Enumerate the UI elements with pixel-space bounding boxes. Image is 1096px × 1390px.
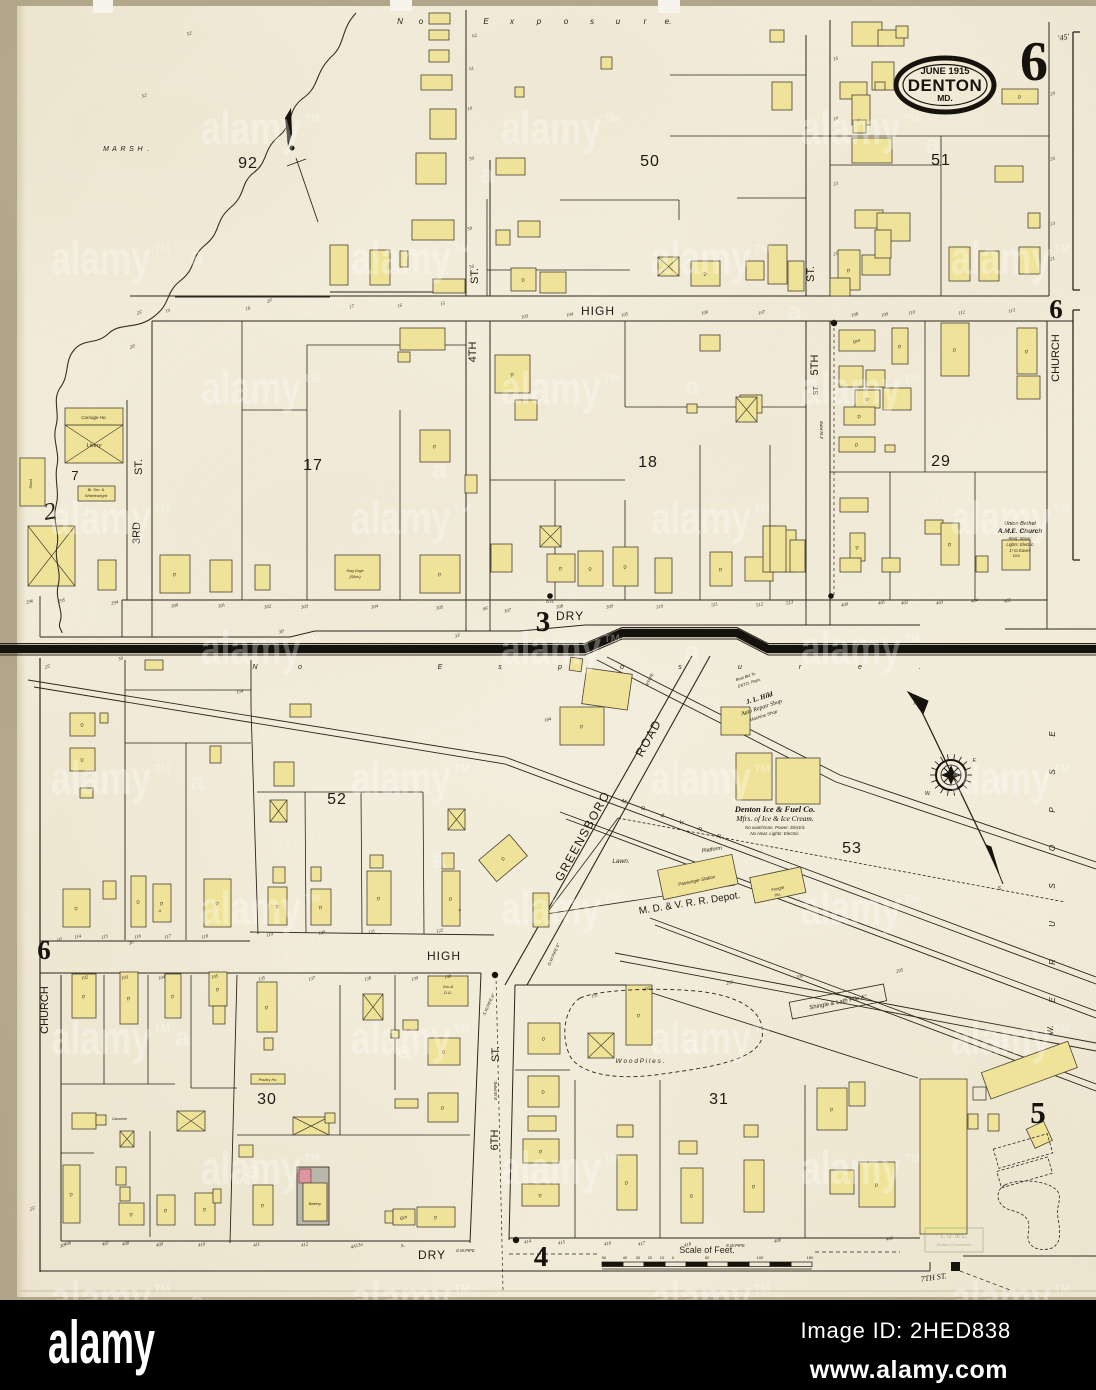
svg-text:TM: TM <box>904 893 920 905</box>
svg-text:50: 50 <box>602 1255 607 1260</box>
svg-text:TM: TM <box>1054 243 1070 255</box>
svg-text:a: a <box>432 844 447 874</box>
svg-text:52: 52 <box>327 791 347 808</box>
svg-text:alamy: alamy <box>801 362 901 414</box>
svg-text:HIGH: HIGH <box>427 949 461 963</box>
svg-text:E: E <box>483 17 489 26</box>
svg-text:TM: TM <box>754 1023 770 1035</box>
svg-text:5: 5 <box>1030 1095 1046 1130</box>
svg-text:20: 20 <box>648 1255 653 1260</box>
svg-text:alamy: alamy <box>51 752 151 804</box>
svg-text:alamy: alamy <box>501 1142 601 1194</box>
svg-text:30: 30 <box>636 1255 641 1260</box>
svg-text:alamy: alamy <box>501 102 601 154</box>
svg-text:Image ID: 2HED838: Image ID: 2HED838 <box>801 1318 1011 1343</box>
svg-text:E: E <box>1048 997 1057 1003</box>
svg-text:ST.: ST. <box>469 268 481 284</box>
svg-text:O.H.: O.H. <box>546 599 554 604</box>
svg-text:6: 6 <box>1049 294 1063 324</box>
svg-text:www.alamy.com: www.alamy.com <box>809 1356 1008 1384</box>
svg-text:ST.: ST. <box>490 1046 502 1062</box>
svg-text:DRY: DRY <box>556 609 584 623</box>
svg-text:6: 6 <box>37 935 51 965</box>
svg-text:.: . <box>148 146 150 153</box>
svg-text:40: 40 <box>623 1255 628 1260</box>
svg-text:a: a <box>685 371 700 401</box>
svg-text:TM: TM <box>154 1023 170 1035</box>
svg-text:U: U <box>1048 921 1057 927</box>
svg-text:P: P <box>1048 807 1057 813</box>
svg-text:Poultry Ho.: Poultry Ho. <box>259 1078 278 1082</box>
svg-text:ST.: ST. <box>133 459 145 475</box>
svg-text:TM: TM <box>754 243 770 255</box>
svg-text:O: O <box>1048 845 1057 851</box>
svg-text:N: N <box>397 17 403 26</box>
svg-text:o: o <box>419 17 424 26</box>
svg-text:E: E <box>438 664 443 671</box>
svg-text:alamy: alamy <box>651 492 751 544</box>
svg-text:150: 150 <box>807 1255 814 1260</box>
svg-text:alamy: alamy <box>201 622 301 674</box>
svg-text:alamy: alamy <box>801 882 901 934</box>
svg-text:100: 100 <box>757 1255 764 1260</box>
svg-text:alamy: alamy <box>651 1012 751 1064</box>
svg-text:S: S <box>1048 883 1057 889</box>
svg-text:Lawn.: Lawn. <box>612 858 630 865</box>
svg-text:p: p <box>536 17 542 26</box>
svg-text:TM: TM <box>604 1153 620 1165</box>
svg-text:alamy: alamy <box>951 232 1051 284</box>
svg-text:alamy: alamy <box>651 752 751 804</box>
svg-text:53: 53 <box>842 840 862 857</box>
svg-text:alamy: alamy <box>351 752 451 804</box>
svg-text:S.: S. <box>998 886 1003 892</box>
svg-text:TM: TM <box>154 1283 170 1295</box>
svg-text:a: a <box>684 636 699 666</box>
svg-text:10: 10 <box>660 1255 665 1260</box>
svg-text:alamy: alamy <box>801 102 901 154</box>
svg-text:a: a <box>993 765 1008 795</box>
svg-text:Rag Grge: Rag Grge <box>346 568 364 573</box>
svg-text:alamy: alamy <box>351 232 451 284</box>
svg-text:alamy: alamy <box>201 362 301 414</box>
svg-text:6: 6 <box>1020 31 1048 93</box>
svg-text:a: a <box>246 1155 261 1185</box>
svg-text:e.: e. <box>665 17 672 26</box>
svg-text:TM: TM <box>604 633 620 645</box>
svg-text:4: 4 <box>534 1241 549 1273</box>
svg-text:Mfrs. of Ice & Ice Cream.: Mfrs. of Ice & Ice Cream. <box>735 814 814 823</box>
svg-text:TM: TM <box>154 243 170 255</box>
svg-text:M: M <box>103 146 109 153</box>
svg-text:MD.: MD. <box>937 93 953 103</box>
svg-text:DRY: DRY <box>418 1248 446 1262</box>
svg-text:W.: W. <box>925 791 931 797</box>
svg-text:a: a <box>787 296 802 326</box>
svg-text:TM: TM <box>304 113 320 125</box>
svg-text:TM: TM <box>154 763 170 775</box>
svg-text:4"W.PIPE: 4"W.PIPE <box>819 421 824 440</box>
svg-text:o: o <box>620 664 624 671</box>
svg-text:TM: TM <box>754 1283 770 1295</box>
svg-text:TM: TM <box>604 373 620 385</box>
svg-text:TM: TM <box>754 763 770 775</box>
svg-text:92: 92 <box>238 155 258 172</box>
svg-text:R: R <box>120 146 125 153</box>
svg-text:50: 50 <box>705 1255 710 1260</box>
svg-text:alamy: alamy <box>51 492 151 544</box>
svg-text:CHURCH: CHURCH <box>1050 334 1062 382</box>
svg-text:TM: TM <box>604 113 620 125</box>
svg-text:alamy: alamy <box>651 232 751 284</box>
svg-text:TM: TM <box>454 763 470 775</box>
svg-text:TM: TM <box>304 893 320 905</box>
svg-text:a: a <box>925 129 940 159</box>
svg-text:1¹ to Eaves: 1¹ to Eaves <box>1009 548 1031 553</box>
svg-text:D.G.: D.G. <box>444 990 452 995</box>
svg-text:a: a <box>397 1035 412 1065</box>
svg-text:alamy: alamy <box>501 622 601 674</box>
svg-text:a: a <box>684 1029 699 1059</box>
svg-text:a: a <box>995 1024 1010 1054</box>
svg-text:HIGH: HIGH <box>581 304 615 318</box>
svg-text:TM: TM <box>304 1153 320 1165</box>
svg-text:1D5: 1D5 <box>1012 553 1020 558</box>
svg-text:17: 17 <box>303 457 323 474</box>
svg-text:TM: TM <box>1054 763 1070 775</box>
svg-text:TM: TM <box>304 373 320 385</box>
svg-text:alamy: alamy <box>801 622 901 674</box>
svg-text:S: S <box>129 146 134 153</box>
svg-text:30: 30 <box>257 1091 277 1108</box>
svg-text:Bakery: Bakery <box>309 1201 322 1206</box>
svg-text:Division of Commerce: Division of Commerce <box>937 1243 971 1247</box>
svg-text:TM: TM <box>904 373 920 385</box>
svg-text:TM: TM <box>1054 503 1070 515</box>
svg-text:31: 31 <box>709 1091 729 1108</box>
svg-text:Gasoline: Gasoline <box>112 1117 127 1121</box>
svg-text:TM: TM <box>904 1153 920 1165</box>
svg-text:R: R <box>1048 959 1057 965</box>
svg-text:Shed: Shed <box>28 479 33 489</box>
svg-text:a: a <box>175 1022 190 1052</box>
svg-text:alamy: alamy <box>51 1012 151 1064</box>
svg-text:alamy: alamy <box>501 882 601 934</box>
svg-text:CHURCH: CHURCH <box>39 986 51 1034</box>
svg-text:4TH: 4TH <box>467 342 479 363</box>
svg-text:E.W.PIPE.: E.W.PIPE. <box>726 1243 746 1248</box>
svg-text:N.: N. <box>914 701 919 707</box>
svg-text:No watchman. Power: Electric: No watchman. Power: Electric <box>745 825 806 830</box>
svg-text:TM: TM <box>454 243 470 255</box>
svg-text:Livery: Livery <box>87 443 103 449</box>
svg-text:Denton Ice & Fuel Co.: Denton Ice & Fuel Co. <box>734 804 816 814</box>
svg-text:alamy: alamy <box>201 102 301 154</box>
svg-text:a: a <box>190 241 205 271</box>
svg-text:alamy: alamy <box>501 362 601 414</box>
svg-text:a: a <box>480 159 495 189</box>
svg-text:TM: TM <box>904 633 920 645</box>
svg-text:alamy: alamy <box>351 492 451 544</box>
svg-text:TM: TM <box>1054 1023 1070 1035</box>
svg-text:18: 18 <box>638 454 658 471</box>
svg-text:E.W.PIPE.: E.W.PIPE. <box>456 1248 476 1253</box>
svg-text:alamy: alamy <box>951 492 1051 544</box>
svg-text:E: E <box>1048 731 1057 737</box>
svg-text:a: a <box>190 766 205 796</box>
svg-text:(Silos): (Silos) <box>349 574 361 579</box>
svg-text:50: 50 <box>640 153 660 170</box>
svg-text:ST.: ST. <box>805 266 817 282</box>
svg-text:alamy: alamy <box>801 1142 901 1194</box>
svg-text:r: r <box>644 17 647 26</box>
svg-text:29: 29 <box>931 453 951 470</box>
svg-text:TM: TM <box>304 633 320 645</box>
svg-text:No Heat. Lights: Electric.: No Heat. Lights: Electric. <box>750 831 800 836</box>
svg-text:alamy: alamy <box>51 232 151 284</box>
svg-text:7: 7 <box>71 468 78 483</box>
svg-text:TM: TM <box>454 1283 470 1295</box>
svg-text:u: u <box>616 17 621 26</box>
svg-text:u: u <box>738 664 742 671</box>
svg-text:TM: TM <box>154 503 170 515</box>
svg-text:alamy: alamy <box>201 882 301 934</box>
svg-text:TM: TM <box>1054 1283 1070 1295</box>
svg-text:TM: TM <box>904 113 920 125</box>
svg-text:s: s <box>678 664 682 671</box>
svg-text:Carriage Ho.: Carriage Ho. <box>81 415 107 420</box>
svg-text:alamy: alamy <box>48 1309 155 1376</box>
svg-text:TM: TM <box>454 1023 470 1035</box>
svg-text:s: s <box>590 17 594 26</box>
svg-text:A: A <box>111 146 117 153</box>
svg-text:6TH: 6TH <box>489 1130 501 1151</box>
svg-text:Gro &: Gro & <box>443 984 454 989</box>
svg-text:L. D. of C.: L. D. of C. <box>940 1234 967 1240</box>
svg-text:TM: TM <box>454 503 470 515</box>
svg-text:E.W.PIPE.: E.W.PIPE. <box>493 1080 498 1100</box>
svg-text:a: a <box>432 454 447 484</box>
svg-text:.: . <box>919 664 921 671</box>
svg-text:TM: TM <box>604 893 620 905</box>
svg-text:TM: TM <box>754 503 770 515</box>
svg-text:o: o <box>564 17 569 26</box>
